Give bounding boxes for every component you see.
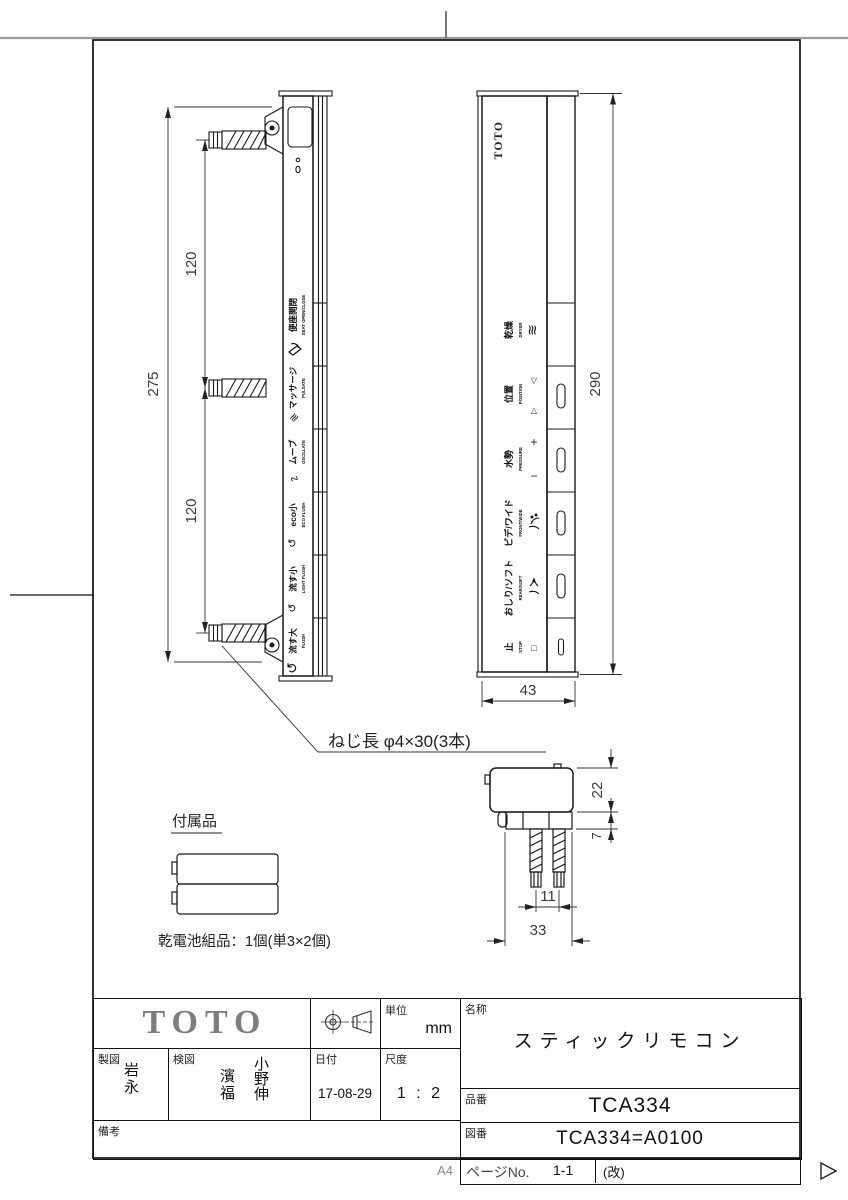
seat-open-close-label-en: SEAT OPEN/CLOSE (301, 295, 306, 336)
front-view-labels: 乾燥 DRYER ≋ 位置 POSITION ▽ △ 水勢 PRESSURE +… (503, 320, 540, 653)
led-mark (296, 158, 300, 162)
light-flush-label-en: LIGHT FLUSH (301, 565, 306, 593)
stop-label-en: STOP (518, 641, 523, 653)
light-flush-label-jp: 流す小 (288, 566, 298, 592)
dim-front-width: 43 (520, 682, 537, 699)
front-wide-button (557, 511, 565, 535)
dim-screw-pitch-upper: 120 (183, 251, 200, 276)
unit-label: 単位 (385, 1002, 407, 1018)
front-view-dimensions (482, 94, 622, 708)
eco-flush-icon: ↺ (287, 538, 299, 547)
drafter-name: 岩永 (120, 1062, 141, 1116)
dryer-label-en: DRYER (518, 322, 523, 338)
page-no-value: 1-1 (553, 1162, 573, 1178)
flush-label-en: FLUSH (301, 634, 306, 648)
flush-window (288, 107, 312, 147)
dim-depth: 22 (589, 782, 606, 799)
checker-name-2: 小野伸 (250, 1056, 271, 1118)
rear-soft-label-en: REAR/SOFT (518, 575, 523, 600)
flush-icon: ↺ (284, 662, 300, 674)
wall-anchor-middle (209, 379, 266, 397)
pressure-minus-icon: − (530, 469, 537, 483)
date-value: 17-08-29 (309, 1086, 381, 1101)
remarks-label: 備考 (98, 1123, 120, 1139)
page-no-label: ページNo. (466, 1162, 530, 1182)
dryer-icon: ≋ (524, 324, 540, 336)
scale-value: 1 : 2 (380, 1085, 460, 1103)
paper-size: A4 (415, 1163, 453, 1178)
oscillate-label-jp: ムーブ (288, 439, 298, 464)
bottom-notch (554, 764, 561, 768)
revision-label: (改) (603, 1162, 625, 1181)
date-label: 日付 (315, 1051, 337, 1067)
unit-value: mm (380, 1020, 452, 1038)
wall-bracket-top (265, 107, 283, 154)
drawing-sheet: { "sheet": { "paper_size": "A4" }, "side… (0, 0, 848, 1200)
pressure-button (557, 448, 565, 472)
bottom-anchor-left (530, 829, 542, 887)
dim-anchor-pitch: 11 (540, 888, 556, 905)
name-value: スティックリモコン (460, 1026, 800, 1053)
bottom-view (485, 764, 573, 887)
pressure-label-en: PRESSURE (518, 447, 523, 471)
eco-flush-label-en: ECO FLUSH (301, 503, 306, 528)
flush-label-jp: 流す大 (288, 628, 298, 654)
front-toto-logo: TOTO (493, 121, 505, 160)
front-wide-label-jp: ビデ/ワイド (503, 499, 514, 547)
wall-anchor-top (209, 131, 266, 149)
dim-overall-height: 275 (145, 371, 162, 396)
eco-flush-label-jp: eco小 (288, 503, 298, 527)
stop-icon: □ (531, 643, 537, 653)
dim-front-height: 290 (587, 371, 604, 396)
battery-drawing (172, 854, 278, 914)
drawing-no-value: TCA334=A0100 (460, 1128, 800, 1150)
drafter-label: 製図 (98, 1051, 120, 1067)
wall-anchor-bottom (209, 624, 266, 642)
dryer-label-jp: 乾燥 (503, 320, 514, 339)
drawing-frame (93, 40, 800, 1158)
stop-button (559, 639, 564, 655)
side-view-labels: 便座開閉 SEAT OPEN/CLOSE マッサージ PULSATE ≋ ムーブ… (284, 295, 306, 674)
seat-open-close-icon (289, 344, 301, 355)
bottom-body (490, 768, 573, 812)
side-edge-panel (313, 96, 327, 676)
rear-soft-icon (529, 578, 539, 594)
battery-2 (177, 884, 278, 914)
stop-label-jp: 止 (503, 642, 514, 651)
toto-logo: TOTO (93, 1000, 310, 1046)
checker-name-1: 濱福 (216, 1068, 237, 1118)
sensor-mark (296, 166, 300, 172)
front-wide-label-en: FRONT/WIDE (518, 509, 523, 536)
seat-open-close-label-jp: 便座開閉 (288, 298, 298, 332)
front-wide-icon (529, 514, 539, 529)
oscillate-label-en: OSCILLATE (301, 440, 306, 464)
pressure-label-jp: 水勢 (503, 450, 514, 468)
pulsate-icon: ≋ (287, 411, 302, 426)
scale-label: 尺度 (385, 1051, 407, 1067)
rear-soft-button (557, 574, 565, 598)
accessory-caption: 乾電池組品：1個(単3×2個) (158, 933, 331, 950)
battery-1-terminal (172, 862, 177, 874)
battery-1 (177, 854, 278, 884)
position-label-jp: 位置 (503, 385, 514, 403)
position-down-icon: ▽ (531, 376, 538, 385)
wall-bracket-bottom (265, 615, 283, 662)
position-label-en: POSITION (518, 384, 523, 405)
dim-bottom-width: 33 (530, 922, 547, 939)
dim-screw-pitch-lower: 120 (183, 498, 200, 523)
rear-soft-label-jp: おしり/ソフト (504, 560, 514, 617)
pulsate-label-en: PULSATE (301, 378, 306, 398)
battery-2-terminal (172, 892, 177, 904)
side-view (209, 91, 332, 681)
checker-label: 検図 (173, 1051, 195, 1067)
part-no-value: TCA334 (460, 1094, 800, 1118)
front-view (477, 91, 578, 677)
bottom-anchor-right (553, 829, 565, 887)
screw-note: ねじ長 φ4×30(3本) (328, 732, 471, 751)
position-up-icon: △ (531, 406, 538, 415)
oscillate-icon: ∿ (287, 472, 302, 487)
side-edge-separators (313, 303, 327, 618)
accessory-title: 付属品 (172, 813, 217, 830)
dim-plate: 7 (589, 832, 604, 839)
pulsate-label-jp: マッサージ (288, 366, 298, 409)
revision-triangle-icon (821, 1163, 836, 1179)
bottom-plate (506, 812, 572, 829)
name-label: 名称 (465, 1001, 487, 1017)
front-button-separators (547, 303, 575, 618)
position-button (557, 384, 565, 408)
pressure-plus-icon: + (530, 435, 537, 449)
light-flush-icon: ↺ (287, 603, 299, 612)
